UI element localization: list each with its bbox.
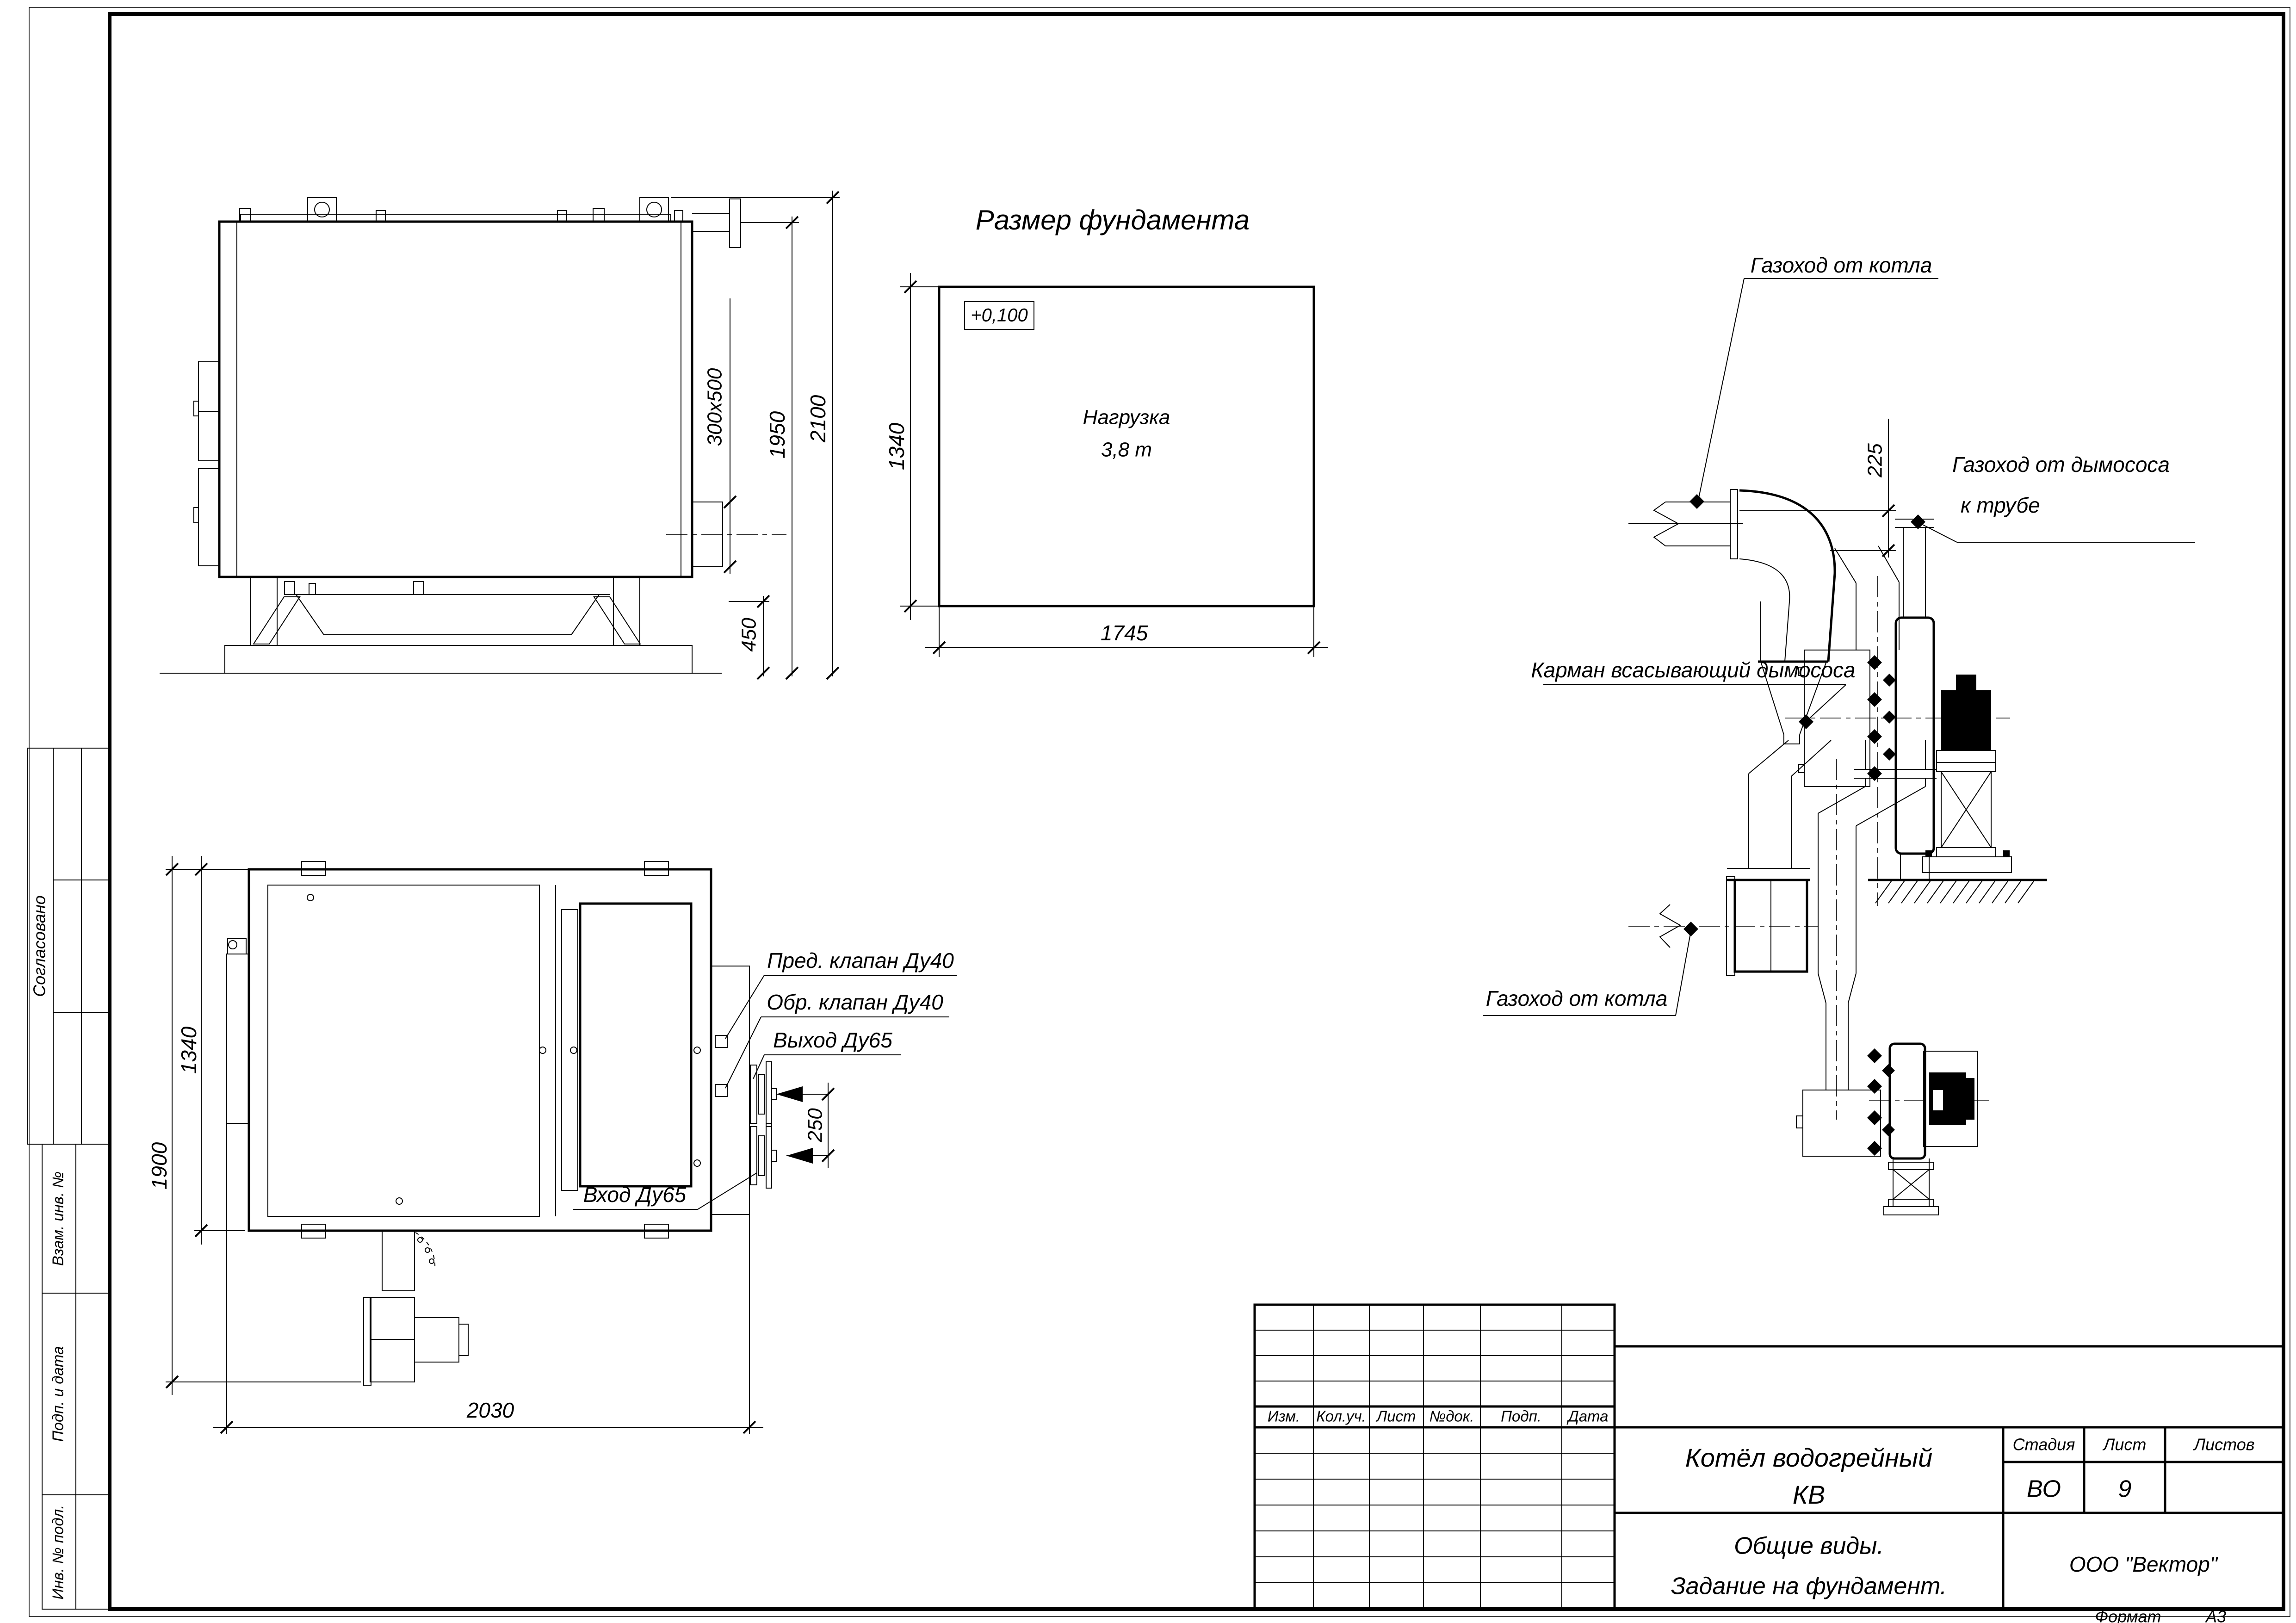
- drawing-sheet: Согласовано Взам. инв. № Подп. и дата Ин…: [0, 0, 2296, 1623]
- svg-text:Вход Ду65: Вход Ду65: [583, 1183, 687, 1207]
- svg-text:Газоход от дымососа: Газоход от дымососа: [1952, 452, 2170, 477]
- sheets-header: Листов: [2193, 1435, 2254, 1454]
- subtitle-line1: Общие виды.: [1734, 1533, 1884, 1560]
- duct-side-view: 225 Газоход от котла Газоход от дымососа…: [1531, 253, 2195, 906]
- title-block: Изм. Кол.уч. Лист №док. Подп. Дата Котёл…: [1255, 1305, 2284, 1623]
- svg-text:Обр. клапан Ду40: Обр. клапан Ду40: [767, 990, 943, 1014]
- lifting-lug-right: [640, 198, 668, 222]
- dim-1950: 1950: [765, 411, 789, 458]
- svg-text:Выход Ду65: Выход Ду65: [773, 1028, 892, 1052]
- format-value: А3: [2205, 1607, 2226, 1623]
- side-view-dimensions: 2100 1950 450 300x500: [671, 191, 840, 679]
- dim-2030: 2030: [466, 1398, 514, 1422]
- svg-text:к трубе: к трубе: [1961, 493, 2040, 517]
- inlet-flange: [750, 1123, 776, 1188]
- col-koluch: Кол.уч.: [1316, 1408, 1366, 1425]
- svg-text:Газоход от котла: Газоход от котла: [1751, 253, 1932, 277]
- dim-450: 450: [738, 618, 761, 652]
- check-valve: [715, 1084, 727, 1096]
- label-duct-from-boiler-plan: Газоход от котла: [1483, 931, 1691, 1016]
- frame-border: [110, 14, 2284, 1609]
- sheet-value: 9: [2118, 1476, 2132, 1503]
- load-value: 3,8 т: [1101, 439, 1152, 461]
- boiler-side-view: 2100 1950 450 300x500: [160, 191, 840, 679]
- dim-1745: 1745: [1101, 621, 1148, 645]
- label-outlet: Выход Ду65: [753, 1028, 901, 1079]
- dim-225: 225: [1864, 443, 1887, 478]
- burner-assembly: [364, 1231, 468, 1385]
- revision-table: Изм. Кол.уч. Лист №док. Подп. Дата: [1255, 1305, 1615, 1609]
- boiler-plan-view: 250 Пред. клапан Ду40 Обр. клапан Ду40 В…: [147, 856, 957, 1434]
- top-flange-pipe: [692, 199, 741, 248]
- fan-motor: [1941, 690, 1991, 750]
- outer-border: [29, 7, 2290, 1617]
- foundation-plan: Размер фундамента +0,100 Нагрузка 3,8 т …: [885, 204, 1328, 657]
- col-data: Дата: [1566, 1408, 1608, 1425]
- sign-date-label: Подп. и дата: [50, 1346, 67, 1442]
- foundation-title: Размер фундамента: [976, 204, 1250, 235]
- stage-value: ВО: [2027, 1476, 2061, 1503]
- col-list: Лист: [1376, 1408, 1416, 1425]
- fan-inlet-box-plan: [1803, 1090, 1881, 1156]
- fan-stand: [1900, 762, 2011, 879]
- left-hatches: [194, 362, 219, 566]
- doc-title-line1: Котёл водогрейный: [1685, 1443, 1933, 1472]
- support-frame: [225, 577, 692, 673]
- label-inlet: Вход Ду65: [573, 1173, 757, 1209]
- format-label: Формат: [2095, 1607, 2161, 1623]
- label-suction-pocket: Карман всасывающий дымососа: [1531, 658, 1855, 729]
- foundation-dimensions: 1745 1340: [885, 273, 1328, 657]
- dim-1340-plan: 1340: [177, 1026, 201, 1074]
- fan-casing: [1896, 618, 1934, 854]
- outlet-flange: [750, 1062, 776, 1127]
- svg-text:Карман всасывающий дымососа: Карман всасывающий дымососа: [1531, 658, 1855, 682]
- ground-hatching: [1868, 880, 2047, 903]
- dim-250: 250: [804, 1108, 827, 1143]
- format-note: Формат А3: [2095, 1607, 2227, 1623]
- sign-date-block: Подп. и дата: [42, 1293, 110, 1495]
- main-stamp: Котёл водогрейный КВ Стадия Лист Листов …: [1255, 1305, 2284, 1609]
- inv-orig-label: Инв. № подл.: [50, 1505, 67, 1600]
- approved-block: Согласовано: [28, 748, 110, 1144]
- dim-300x500: 300x500: [704, 368, 726, 446]
- subtitle-line2: Задание на фундамент.: [1671, 1573, 1947, 1600]
- elevation-value: +0,100: [971, 305, 1027, 326]
- replace-inv-block: Взам. инв. №: [42, 1144, 110, 1293]
- dim-250-group: 250: [776, 1083, 834, 1168]
- side-hatch: [666, 502, 786, 567]
- dim-2100: 2100: [806, 395, 830, 443]
- duct-plan-view: Газоход от котла: [1483, 740, 1989, 1215]
- approved-label: Согласовано: [30, 895, 49, 997]
- stage-header: Стадия: [2013, 1435, 2075, 1454]
- fan-stand-plan: [1884, 1158, 1938, 1215]
- sheet-header: Лист: [2103, 1435, 2147, 1454]
- col-ndok: №док.: [1429, 1408, 1474, 1425]
- doc-title-line2: КВ: [1793, 1480, 1825, 1509]
- company-name: ООО "Вектор": [2069, 1552, 2219, 1576]
- col-podp: Подп.: [1501, 1408, 1541, 1425]
- svg-text:Газоход от котла: Газоход от котла: [1486, 986, 1668, 1010]
- svg-text:Пред. клапан Ду40: Пред. клапан Ду40: [767, 948, 954, 973]
- lifting-lug-left: [308, 198, 336, 222]
- dim-1900: 1900: [147, 1142, 171, 1189]
- col-izm: Изм.: [1268, 1408, 1300, 1425]
- dim-225-group: 225: [1739, 419, 1896, 558]
- load-label: Нагрузка: [1083, 406, 1170, 429]
- label-duct-to-stack: Газоход от дымососа к трубе: [1911, 452, 2195, 542]
- replace-inv-label: Взам. инв. №: [50, 1171, 67, 1266]
- dim-1340-foundation: 1340: [885, 422, 909, 470]
- inv-orig-block: Инв. № подл.: [42, 1495, 110, 1609]
- label-duct-from-boiler: Газоход от котла: [1690, 253, 1938, 509]
- sidebar: Согласовано Взам. инв. № Подп. и дата Ин…: [28, 748, 110, 1609]
- safety-valve: [715, 1035, 727, 1047]
- plan-view-dimensions: 1900 1340 2030: [147, 856, 763, 1434]
- fan-casing-plan: [1890, 1044, 1925, 1158]
